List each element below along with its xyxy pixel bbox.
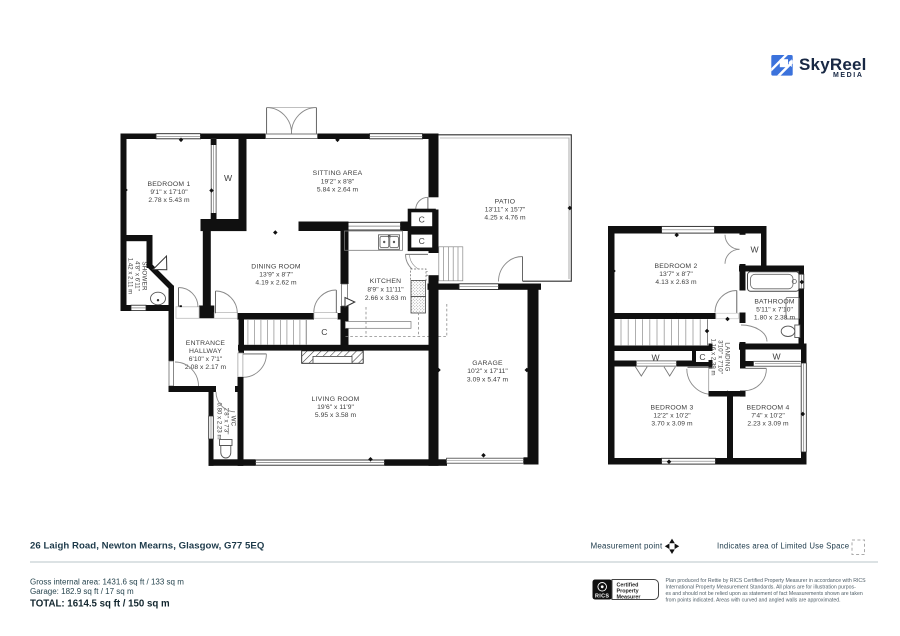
svg-text:from points indicated. Areas w: from points indicated. Areas with curved… [666, 598, 841, 604]
svg-text:W: W [224, 173, 233, 183]
svg-text:BEDROOM 3: BEDROOM 3 [650, 405, 693, 412]
svg-text:4.25 x 4.76 m: 4.25 x 4.76 m [484, 215, 526, 222]
svg-text:C: C [699, 352, 705, 362]
svg-text:13'11" x 15'7": 13'11" x 15'7" [485, 207, 526, 214]
svg-text:BEDROOM 4: BEDROOM 4 [746, 405, 789, 412]
svg-text:BEDROOM 1: BEDROOM 1 [147, 181, 190, 188]
svg-text:Gross internal area: 1431.6 sq: Gross internal area: 1431.6 sq ft / 133 … [30, 578, 184, 587]
svg-text:2.23 x 3.09 m: 2.23 x 3.09 m [747, 421, 789, 428]
svg-text:3.70 x 3.09 m: 3.70 x 3.09 m [651, 421, 693, 428]
svg-text:C: C [419, 215, 425, 225]
svg-text:1.42 x 2.11 m: 1.42 x 2.11 m [127, 258, 133, 295]
svg-text:ENTRANCE: ENTRANCE [186, 340, 226, 347]
svg-text:Plan produced for Rettie by RI: Plan produced for Rettie by RICS Certifi… [666, 578, 867, 584]
svg-text:0.80 x 2.23 m: 0.80 x 2.23 m [216, 402, 222, 439]
svg-text:es and should not be relied up: es and should not be relied upon as stat… [666, 591, 863, 597]
svg-text:13'9" x 8'7": 13'9" x 8'7" [259, 272, 293, 279]
svg-text:8'9" x 11'11": 8'9" x 11'11" [367, 287, 404, 294]
svg-text:2'8" x 7'3": 2'8" x 7'3" [223, 408, 229, 435]
svg-text:MEDIA: MEDIA [833, 72, 864, 79]
svg-text:International Property Measur: International Property Measurement Stand… [666, 585, 857, 591]
svg-text:4'8" x 6'11": 4'8" x 6'11" [134, 261, 140, 291]
svg-text:SHOWER: SHOWER [141, 261, 148, 291]
svg-text:HALLWAY: HALLWAY [189, 348, 222, 355]
svg-text:PATIO: PATIO [495, 199, 516, 206]
svg-text:KITCHEN: KITCHEN [370, 278, 402, 285]
svg-text:7'4" x 10'2": 7'4" x 10'2" [751, 413, 785, 420]
svg-text:13'7" x 8'7": 13'7" x 8'7" [659, 271, 693, 278]
svg-text:Measurer: Measurer [617, 595, 642, 601]
svg-text:26 Laigh Road, Newton Mearns,: 26 Laigh Road, Newton Mearns, Glasgow, G… [30, 541, 265, 552]
svg-text:LANDING: LANDING [724, 342, 731, 371]
svg-text:W: W [750, 245, 759, 255]
svg-text:Garage: 182.9 sq ft / 17 sq m: Garage: 182.9 sq ft / 17 sq m [30, 587, 134, 596]
svg-text:2.66 x 3.63 m: 2.66 x 3.63 m [365, 295, 407, 302]
svg-text:4.13 x 2.63 m: 4.13 x 2.63 m [655, 279, 697, 286]
svg-text:RICS: RICS [595, 594, 609, 600]
svg-text:DINING ROOM: DINING ROOM [251, 264, 301, 271]
svg-text:1.80 x 2.38 m: 1.80 x 2.38 m [754, 315, 796, 322]
svg-text:3.09 x 5.47 m: 3.09 x 5.47 m [467, 377, 509, 384]
svg-text:5.95 x 3.58 m: 5.95 x 3.58 m [315, 412, 357, 419]
svg-text:W: W [772, 352, 781, 362]
svg-text:Measurement point: Measurement point [591, 542, 663, 551]
svg-text:C: C [419, 236, 425, 246]
svg-text:10'2" x 17'11": 10'2" x 17'11" [467, 368, 508, 375]
svg-text:Indicates area of Limited Use: Indicates area of Limited Use Space [717, 542, 849, 551]
svg-text:6'10" x 7'1": 6'10" x 7'1" [189, 356, 223, 363]
svg-text:12'2" x 10'2": 12'2" x 10'2" [653, 413, 691, 420]
svg-text:19'2" x 8'8": 19'2" x 8'8" [321, 179, 355, 186]
svg-text:2.08 x 2.17 m: 2.08 x 2.17 m [185, 364, 227, 371]
svg-text:BATHROOM: BATHROOM [754, 299, 795, 306]
svg-text:C: C [321, 327, 327, 337]
svg-text:2.78 x 5.43 m: 2.78 x 5.43 m [148, 197, 190, 204]
svg-text:5'11" x 7'10": 5'11" x 7'10" [756, 307, 793, 314]
svg-text:GARAGE: GARAGE [472, 360, 503, 367]
svg-text:5.84 x 2.64 m: 5.84 x 2.64 m [317, 187, 359, 194]
svg-text:LIVING ROOM: LIVING ROOM [311, 396, 359, 403]
svg-text:19'6" x 11'9": 19'6" x 11'9" [317, 404, 354, 411]
svg-text:WC: WC [230, 416, 237, 427]
svg-text:TOTAL: 1614.5 sq ft / 150 sq m: TOTAL: 1614.5 sq ft / 150 sq m [30, 598, 170, 609]
svg-text:3'10" x 7'10": 3'10" x 7'10" [717, 340, 723, 374]
svg-text:9'1" x 17'10": 9'1" x 17'10" [150, 189, 188, 196]
svg-text:4.19 x 2.62 m: 4.19 x 2.62 m [255, 280, 297, 287]
svg-text:BEDROOM 2: BEDROOM 2 [654, 263, 697, 270]
svg-text:SITTING AREA: SITTING AREA [313, 170, 363, 177]
